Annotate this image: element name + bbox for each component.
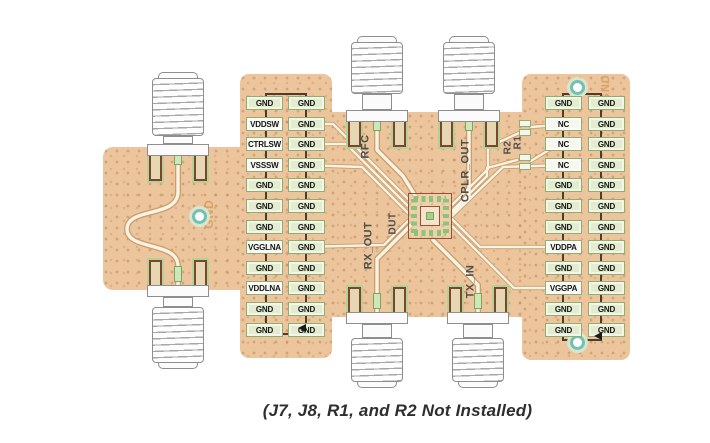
- sma-connector-top-left-flange: [346, 110, 408, 122]
- sma-connector-top-left-cap: [357, 36, 397, 43]
- pin-pad-right-inner-4: NC: [545, 158, 582, 172]
- chip-center-pad: [426, 212, 434, 220]
- sma-connector-left-bottom-cap: [158, 362, 198, 369]
- label-dut: DUT: [387, 212, 400, 236]
- pin-pad-right-outer-1: GND: [588, 96, 625, 110]
- pin-pad-left-outer-10: GND: [288, 281, 325, 295]
- pin-pad-left-inner-9: GND: [246, 261, 283, 275]
- sma-connector-top-left-threads: [351, 42, 403, 94]
- pin-pad-right-inner-5: GND: [545, 178, 582, 192]
- pin-pad-right-outer-4: GND: [588, 158, 625, 172]
- pin-pad-left-inner-12: GND: [246, 323, 283, 337]
- sma-connector-left-bottom-flange: [147, 285, 209, 297]
- pcb-figure: RFC CPLR_OUT R2 R1 RX_OUT DUT TX_IN GND …: [0, 0, 710, 443]
- sma-connector-bottom-left-neck: [362, 324, 392, 338]
- pin-pad-left-outer-4: GND: [288, 158, 325, 172]
- pin-pad-right-outer-3: GND: [588, 137, 625, 151]
- pin-pad-left-inner-4: VSSSW: [246, 158, 283, 172]
- pin-pad-right-outer-9: GND: [588, 261, 625, 275]
- pin-pad-left-inner-2: VDDSW: [246, 117, 283, 131]
- sma-connector-left-bottom-center-pin-pad: [174, 266, 182, 282]
- sma-connector-top-left-neck: [362, 94, 392, 110]
- pin-pad-left-inner-6: GND: [246, 199, 283, 213]
- pin-pad-left-outer-8: GND: [288, 240, 325, 254]
- pin-pad-left-inner-3: CTRLSW: [246, 137, 283, 151]
- r1-footprint-pad: [519, 120, 531, 127]
- pin-pad-left-inner-8: VGGLNA: [246, 240, 283, 254]
- label-rx-out: RX_OUT: [363, 201, 376, 291]
- pin-pad-right-inner-11: GND: [545, 302, 582, 316]
- pin-pad-right-outer-8: GND: [588, 240, 625, 254]
- sma-connector-top-right-cap: [449, 36, 489, 43]
- sma-connector-bottom-right-threads: [452, 338, 504, 382]
- pin-pad-right-inner-10: VGGPA: [545, 281, 582, 295]
- via-left-tab: [192, 209, 207, 224]
- r2-footprint-pad: [519, 163, 531, 170]
- pin-pad-right-inner-8: VDDPA: [545, 240, 582, 254]
- chip-pads-left: [411, 199, 417, 233]
- pin-pad-right-outer-11: GND: [588, 302, 625, 316]
- dut-chip-footprint: [408, 193, 452, 239]
- r2-footprint-pad: [519, 154, 531, 161]
- sma-connector-top-right-neck: [454, 94, 484, 110]
- chip-pads-bottom: [414, 230, 446, 236]
- left-header-pin1-arrow: [298, 324, 306, 332]
- pin-pad-left-outer-2: GND: [288, 117, 325, 131]
- sma-connector-bottom-right-flange: [447, 312, 509, 324]
- sma-connector-top-right-threads: [443, 42, 495, 94]
- pin-pad-left-inner-11: GND: [246, 302, 283, 316]
- pin-pad-left-outer-1: GND: [288, 96, 325, 110]
- sma-connector-left-top-cap: [158, 72, 198, 79]
- pin-pad-right-inner-3: NC: [545, 137, 582, 151]
- sma-connector-bottom-left-center-pin-pad: [373, 293, 381, 309]
- pin-pad-left-outer-11: GND: [288, 302, 325, 316]
- pin-pad-right-outer-5: GND: [588, 178, 625, 192]
- label-r1: R1: [512, 131, 525, 155]
- sma-connector-top-right-flange: [438, 110, 500, 122]
- label-cplr-out: CPLR_OUT: [460, 126, 473, 216]
- pin-pad-right-inner-9: GND: [545, 261, 582, 275]
- pin-pad-right-inner-7: GND: [545, 220, 582, 234]
- pin-pad-left-inner-1: GND: [246, 96, 283, 110]
- pin-pad-right-outer-2: GND: [588, 117, 625, 131]
- sma-connector-bottom-left-threads: [351, 338, 403, 382]
- pin-pad-left-outer-12: GND: [288, 323, 325, 337]
- via-right-bottom: [570, 335, 585, 350]
- pin-pad-left-outer-5: GND: [288, 178, 325, 192]
- sma-connector-left-bottom-threads: [152, 307, 204, 363]
- sma-connector-left-bottom-neck: [163, 297, 193, 307]
- pin-pad-right-inner-2: NC: [545, 117, 582, 131]
- pin-pad-left-outer-7: GND: [288, 220, 325, 234]
- pin-pad-left-inner-5: GND: [246, 178, 283, 192]
- sma-connector-left-top-neck: [163, 136, 193, 144]
- pin-pad-right-outer-6: GND: [588, 199, 625, 213]
- sma-connector-bottom-right-neck: [463, 324, 493, 338]
- pin-pad-left-outer-3: GND: [288, 137, 325, 151]
- pin-pad-right-inner-1: GND: [545, 96, 582, 110]
- via-right-top: [570, 80, 585, 95]
- chip-pads-right: [443, 199, 449, 233]
- pin-pad-right-outer-10: GND: [588, 281, 625, 295]
- pin-pad-left-inner-7: GND: [246, 220, 283, 234]
- pin-pad-left-outer-9: GND: [288, 261, 325, 275]
- sma-connector-bottom-right-cap: [458, 381, 498, 388]
- sma-connector-bottom-left-cap: [357, 381, 397, 388]
- chip-pads-top: [414, 196, 446, 202]
- sma-connector-left-top-flange: [147, 144, 209, 156]
- pin-pad-right-inner-6: GND: [545, 199, 582, 213]
- sma-connector-bottom-left-flange: [346, 312, 408, 324]
- sma-connector-left-top-threads: [152, 78, 204, 136]
- right-header-pin1-arrow: [594, 332, 602, 340]
- pin-pad-left-outer-6: GND: [288, 199, 325, 213]
- pin-pad-right-outer-7: GND: [588, 220, 625, 234]
- pin-pad-left-inner-10: VDDLNA: [246, 281, 283, 295]
- pin-pad-right-inner-12: GND: [545, 323, 582, 337]
